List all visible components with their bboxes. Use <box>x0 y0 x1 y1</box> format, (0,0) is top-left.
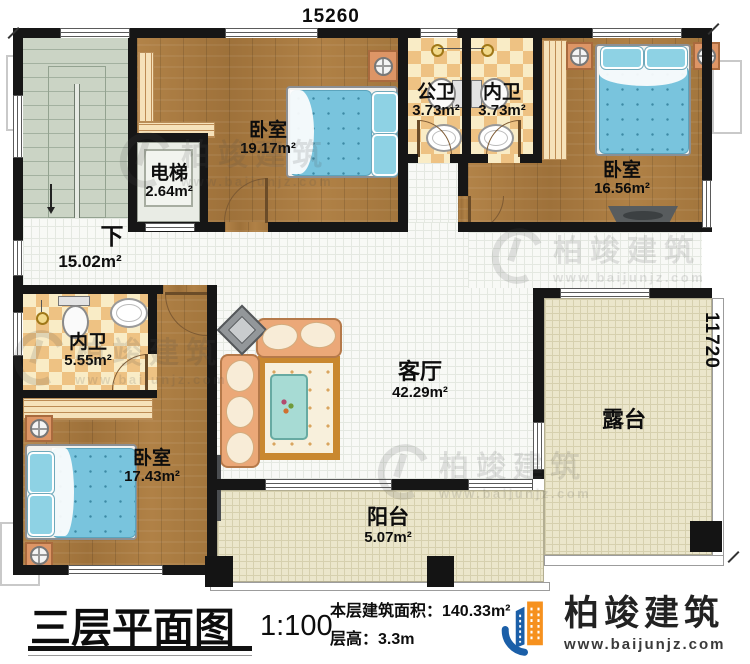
nightstand <box>368 50 398 82</box>
wall <box>398 38 408 232</box>
door-threshold <box>225 222 268 232</box>
bed-pillow <box>372 92 398 134</box>
wall <box>408 154 418 163</box>
wall <box>268 222 408 232</box>
brand-name: 柏竣建筑 <box>564 596 725 633</box>
wall <box>702 28 712 180</box>
stairs-down-label: 下 <box>101 224 124 250</box>
floor-height-line: 层高：3.3m <box>330 626 511 654</box>
sink <box>110 298 148 328</box>
wall <box>450 154 488 163</box>
window <box>560 288 650 298</box>
towel-ring-icon <box>431 44 444 57</box>
wall <box>217 479 265 490</box>
balcony-sliding-door <box>265 479 392 490</box>
title-underline <box>28 646 252 651</box>
wall <box>318 28 420 38</box>
title-underline-thin <box>28 655 252 656</box>
stair-direction-line <box>50 184 52 208</box>
room-label-inner-bath: 内卫 3.73m² <box>478 82 526 120</box>
room-label-inner-bath2: 内卫 5.55m² <box>64 332 112 370</box>
floor-area-line: 本层建筑面积：140.33m² <box>330 598 511 626</box>
bed-pillow <box>372 134 398 176</box>
wall <box>533 288 544 422</box>
bed-pillow <box>28 452 54 494</box>
room-label-living: 客厅 42.29m² <box>392 360 448 401</box>
door-leaf-inner-bath2 <box>145 354 148 390</box>
dimension-right: 11720 <box>700 312 722 369</box>
window <box>225 28 318 38</box>
wall <box>130 28 225 38</box>
wall <box>458 154 468 196</box>
exterior-sill <box>712 60 742 134</box>
wall <box>13 276 23 312</box>
wall <box>458 222 712 232</box>
room-label-terrace: 露台 <box>602 408 646 433</box>
towel-ring-icon <box>36 312 49 325</box>
wardrobe-bedroom1-vertical <box>138 52 154 122</box>
window <box>592 28 682 38</box>
window <box>13 240 23 276</box>
lamp-icon <box>570 47 589 66</box>
window <box>468 479 533 490</box>
wall <box>148 294 157 354</box>
wardrobe-bedroom2 <box>542 40 567 160</box>
pillar <box>690 521 722 552</box>
door-threshold <box>148 354 157 390</box>
wall <box>23 390 157 398</box>
pillar <box>205 556 233 587</box>
rear-strip-floor <box>468 232 702 288</box>
wall <box>533 38 542 163</box>
room-label-bedroom2: 卧室 16.56m² <box>594 160 650 198</box>
window <box>13 312 23 356</box>
lamp-icon <box>30 546 49 565</box>
brand-logo-icon <box>500 596 556 656</box>
door-leaf-bedroom3 <box>165 292 207 295</box>
nightstand <box>25 415 53 442</box>
wall <box>207 285 217 565</box>
nightstand <box>566 42 593 70</box>
plan-title: 三层平面图 <box>30 594 235 654</box>
bath-corridor-floor <box>408 163 458 222</box>
wall <box>702 228 712 232</box>
room-label-bedroom1: 卧室 19.17m² <box>240 120 296 158</box>
wall <box>200 133 208 232</box>
wall <box>458 28 592 38</box>
bed-sheet <box>52 448 74 536</box>
bed-pillow <box>645 47 687 69</box>
floorplan-page: 卧室 19.17m² 电梯 2.64m² 公卫 3.73m² 内卫 3.73m²… <box>0 0 750 664</box>
plan-info: 本层建筑面积：140.33m² 层高：3.3m <box>330 598 511 654</box>
room-label-elevator: 电梯 2.64m² <box>145 163 193 201</box>
wall <box>13 565 68 575</box>
dimension-top: 15260 <box>302 6 360 28</box>
wall <box>13 158 23 240</box>
bed-pillow <box>28 494 54 536</box>
window <box>13 95 23 158</box>
elevator-door <box>145 223 195 231</box>
wall <box>128 28 137 232</box>
door-leaf-inner-bath <box>518 120 521 157</box>
wall <box>13 285 163 294</box>
lamp-icon <box>30 419 49 438</box>
wall <box>462 38 471 163</box>
wall <box>650 288 712 298</box>
door-leaf-public-bath <box>417 120 420 157</box>
sliding-door <box>533 422 544 470</box>
wall <box>520 154 542 163</box>
wall <box>128 133 208 142</box>
wall <box>13 356 23 575</box>
window <box>702 180 712 228</box>
bed-pillow <box>601 47 643 69</box>
window <box>60 28 130 38</box>
coffee-table <box>270 374 308 440</box>
room-label-public-bath: 公卫 3.73m² <box>412 82 460 120</box>
door-leaf-bedroom1 <box>265 178 268 223</box>
wall <box>533 470 544 479</box>
window <box>420 28 458 38</box>
stair-rail <box>74 84 80 218</box>
terrace-parapet-bottom <box>544 555 724 566</box>
brand-url: www.baijunjz.com <box>564 636 725 653</box>
towel-rail <box>438 48 484 49</box>
brand-logo: 柏竣建筑 www.baijunjz.com <box>500 596 725 656</box>
towel-ring-icon <box>481 44 494 57</box>
stair-down-arrow <box>47 207 55 214</box>
pillar <box>427 556 454 587</box>
lamp-icon <box>374 57 393 76</box>
plan-scale: 1:100 <box>260 610 333 643</box>
towel-cord <box>41 300 42 312</box>
room-label-balcony: 阳台 5.07m² <box>364 506 412 546</box>
dimension-tick <box>727 551 739 563</box>
wall <box>13 28 23 95</box>
room-label-bedroom3: 卧室 17.43m² <box>124 448 180 486</box>
window <box>68 565 163 575</box>
wall <box>392 479 468 490</box>
hall-area-label: 15.02m² <box>58 252 121 271</box>
balcony-parapet-bottom <box>210 582 550 591</box>
